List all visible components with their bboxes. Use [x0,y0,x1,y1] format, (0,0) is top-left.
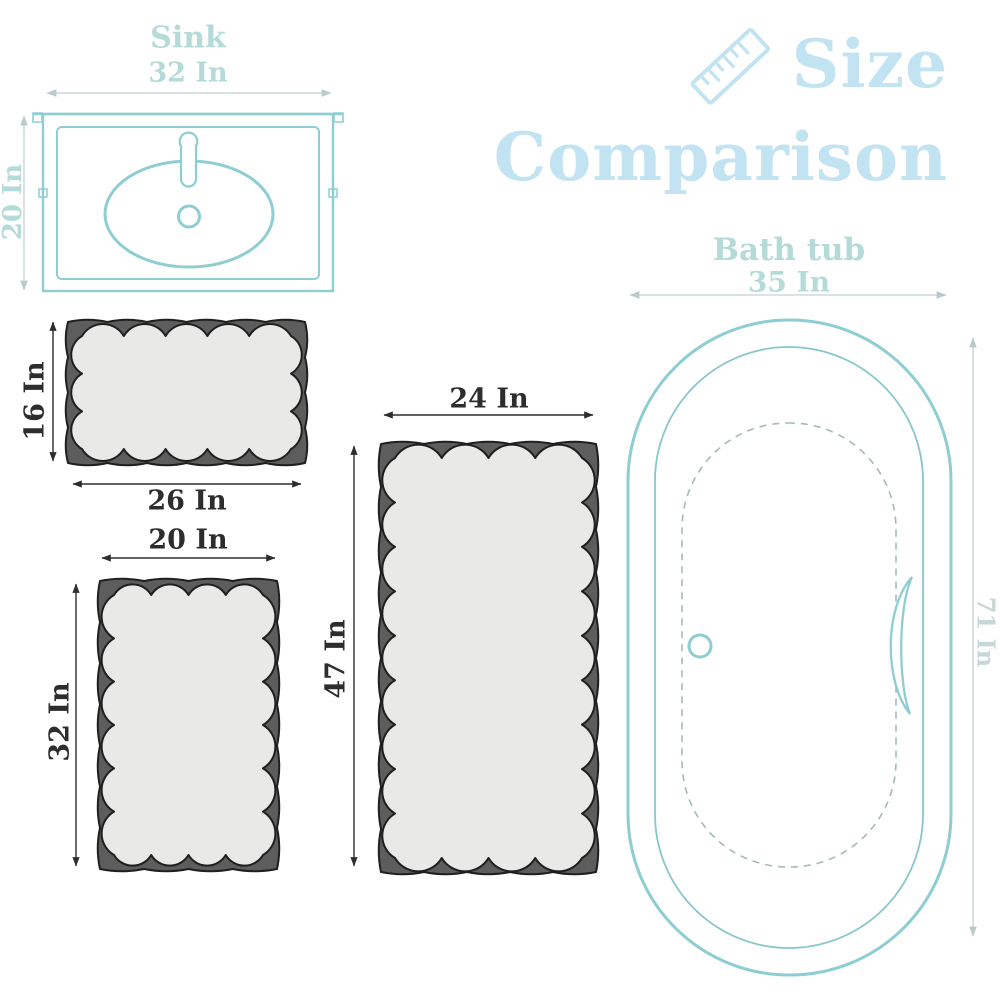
sink-dimension-lines [24,93,331,290]
sink-width-label: 32 In [148,58,227,89]
rug-runner-width-label: 24 In [449,384,528,415]
tub-handle-icon [891,577,912,714]
sink-drawing [33,113,343,291]
size-comparison-infographic: Size Comparison Sink 32 In 20 In Bath tu… [0,0,1000,1000]
rug-runner-drawing [379,442,599,874]
sink-label: Sink [150,21,226,56]
sink-drain-icon [179,206,200,227]
rug-medium-height-label: 32 In [45,682,76,761]
page-title: Size Comparison [494,18,948,190]
title-word-size: Size [792,31,948,97]
rug-small-width-label: 26 In [147,486,226,517]
sink-height-label: 20 In [0,164,28,240]
bathtub-height-label: 71 In [972,597,1000,667]
ruler-icon [684,18,776,110]
rug-runner-height-label: 47 In [321,619,352,698]
bathtub-drawing [628,320,951,975]
title-word-comparison: Comparison [494,124,948,190]
bathtub-label: Bath tub [713,232,865,268]
rug-medium-drawing [98,579,280,872]
rug-small-height-label: 16 In [20,361,51,440]
rug-medium-width-label: 20 In [148,525,227,556]
bathtub-width-label: 35 In [748,266,830,299]
faucet-icon [180,133,198,187]
rug-small-drawing [66,320,308,466]
tub-dimension-lines [630,295,973,936]
tub-drain-icon [689,635,711,657]
